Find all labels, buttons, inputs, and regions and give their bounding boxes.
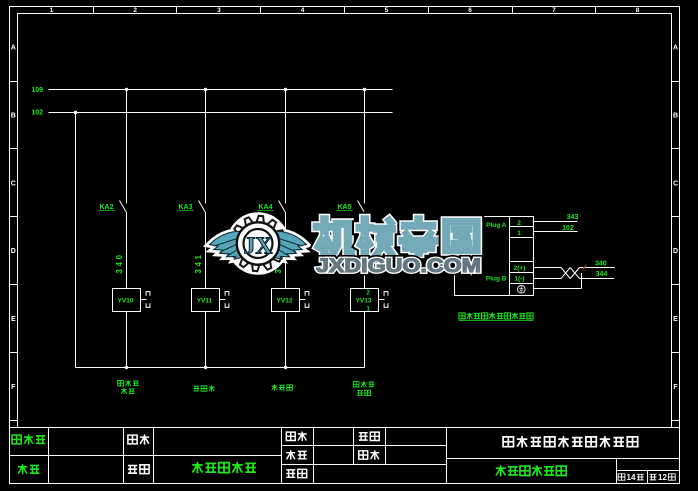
svg-text:C: C [11, 180, 16, 187]
svg-text:D: D [11, 248, 16, 255]
svg-text:Plug B: Plug B [486, 276, 507, 283]
svg-text:4: 4 [301, 7, 305, 14]
svg-text:1(-): 1(-) [514, 276, 524, 283]
svg-text:F: F [11, 384, 16, 391]
svg-text:340: 340 [595, 260, 607, 267]
svg-text:E: E [11, 316, 16, 323]
svg-text:102: 102 [562, 225, 574, 232]
svg-text:109: 109 [31, 87, 43, 94]
svg-text:A: A [673, 45, 678, 52]
svg-text:B: B [673, 112, 678, 119]
svg-text:E: E [673, 316, 678, 323]
svg-text:344: 344 [596, 271, 608, 278]
svg-text:8: 8 [636, 7, 640, 14]
svg-text:YV13: YV13 [356, 298, 372, 305]
svg-text:12: 12 [658, 473, 667, 482]
svg-text:340: 340 [115, 252, 124, 273]
svg-text:1: 1 [517, 230, 521, 237]
svg-text:5: 5 [385, 7, 389, 14]
svg-text:YV10: YV10 [118, 298, 134, 305]
svg-text:JXDIGUO.COM: JXDIGUO.COM [316, 255, 481, 277]
svg-text:6: 6 [468, 7, 472, 14]
svg-text:341: 341 [194, 252, 203, 273]
svg-text:D: D [673, 248, 678, 255]
svg-text:A: A [11, 45, 16, 52]
svg-text:1: 1 [50, 7, 54, 14]
svg-text:YV11: YV11 [197, 298, 213, 305]
svg-text:C: C [673, 180, 678, 187]
svg-text:2: 2 [133, 7, 137, 14]
svg-text:2(+): 2(+) [514, 265, 526, 272]
svg-text:JX: JX [244, 234, 274, 260]
svg-text:2: 2 [517, 220, 521, 227]
svg-text:14: 14 [627, 473, 636, 482]
svg-text:343: 343 [567, 214, 579, 221]
svg-text:102: 102 [31, 110, 43, 117]
svg-text:Plug A: Plug A [486, 222, 507, 229]
svg-text:F: F [673, 384, 678, 391]
svg-text:3: 3 [217, 7, 221, 14]
svg-text:7: 7 [552, 7, 556, 14]
svg-text:YV12: YV12 [277, 298, 293, 305]
svg-text:B: B [11, 112, 16, 119]
